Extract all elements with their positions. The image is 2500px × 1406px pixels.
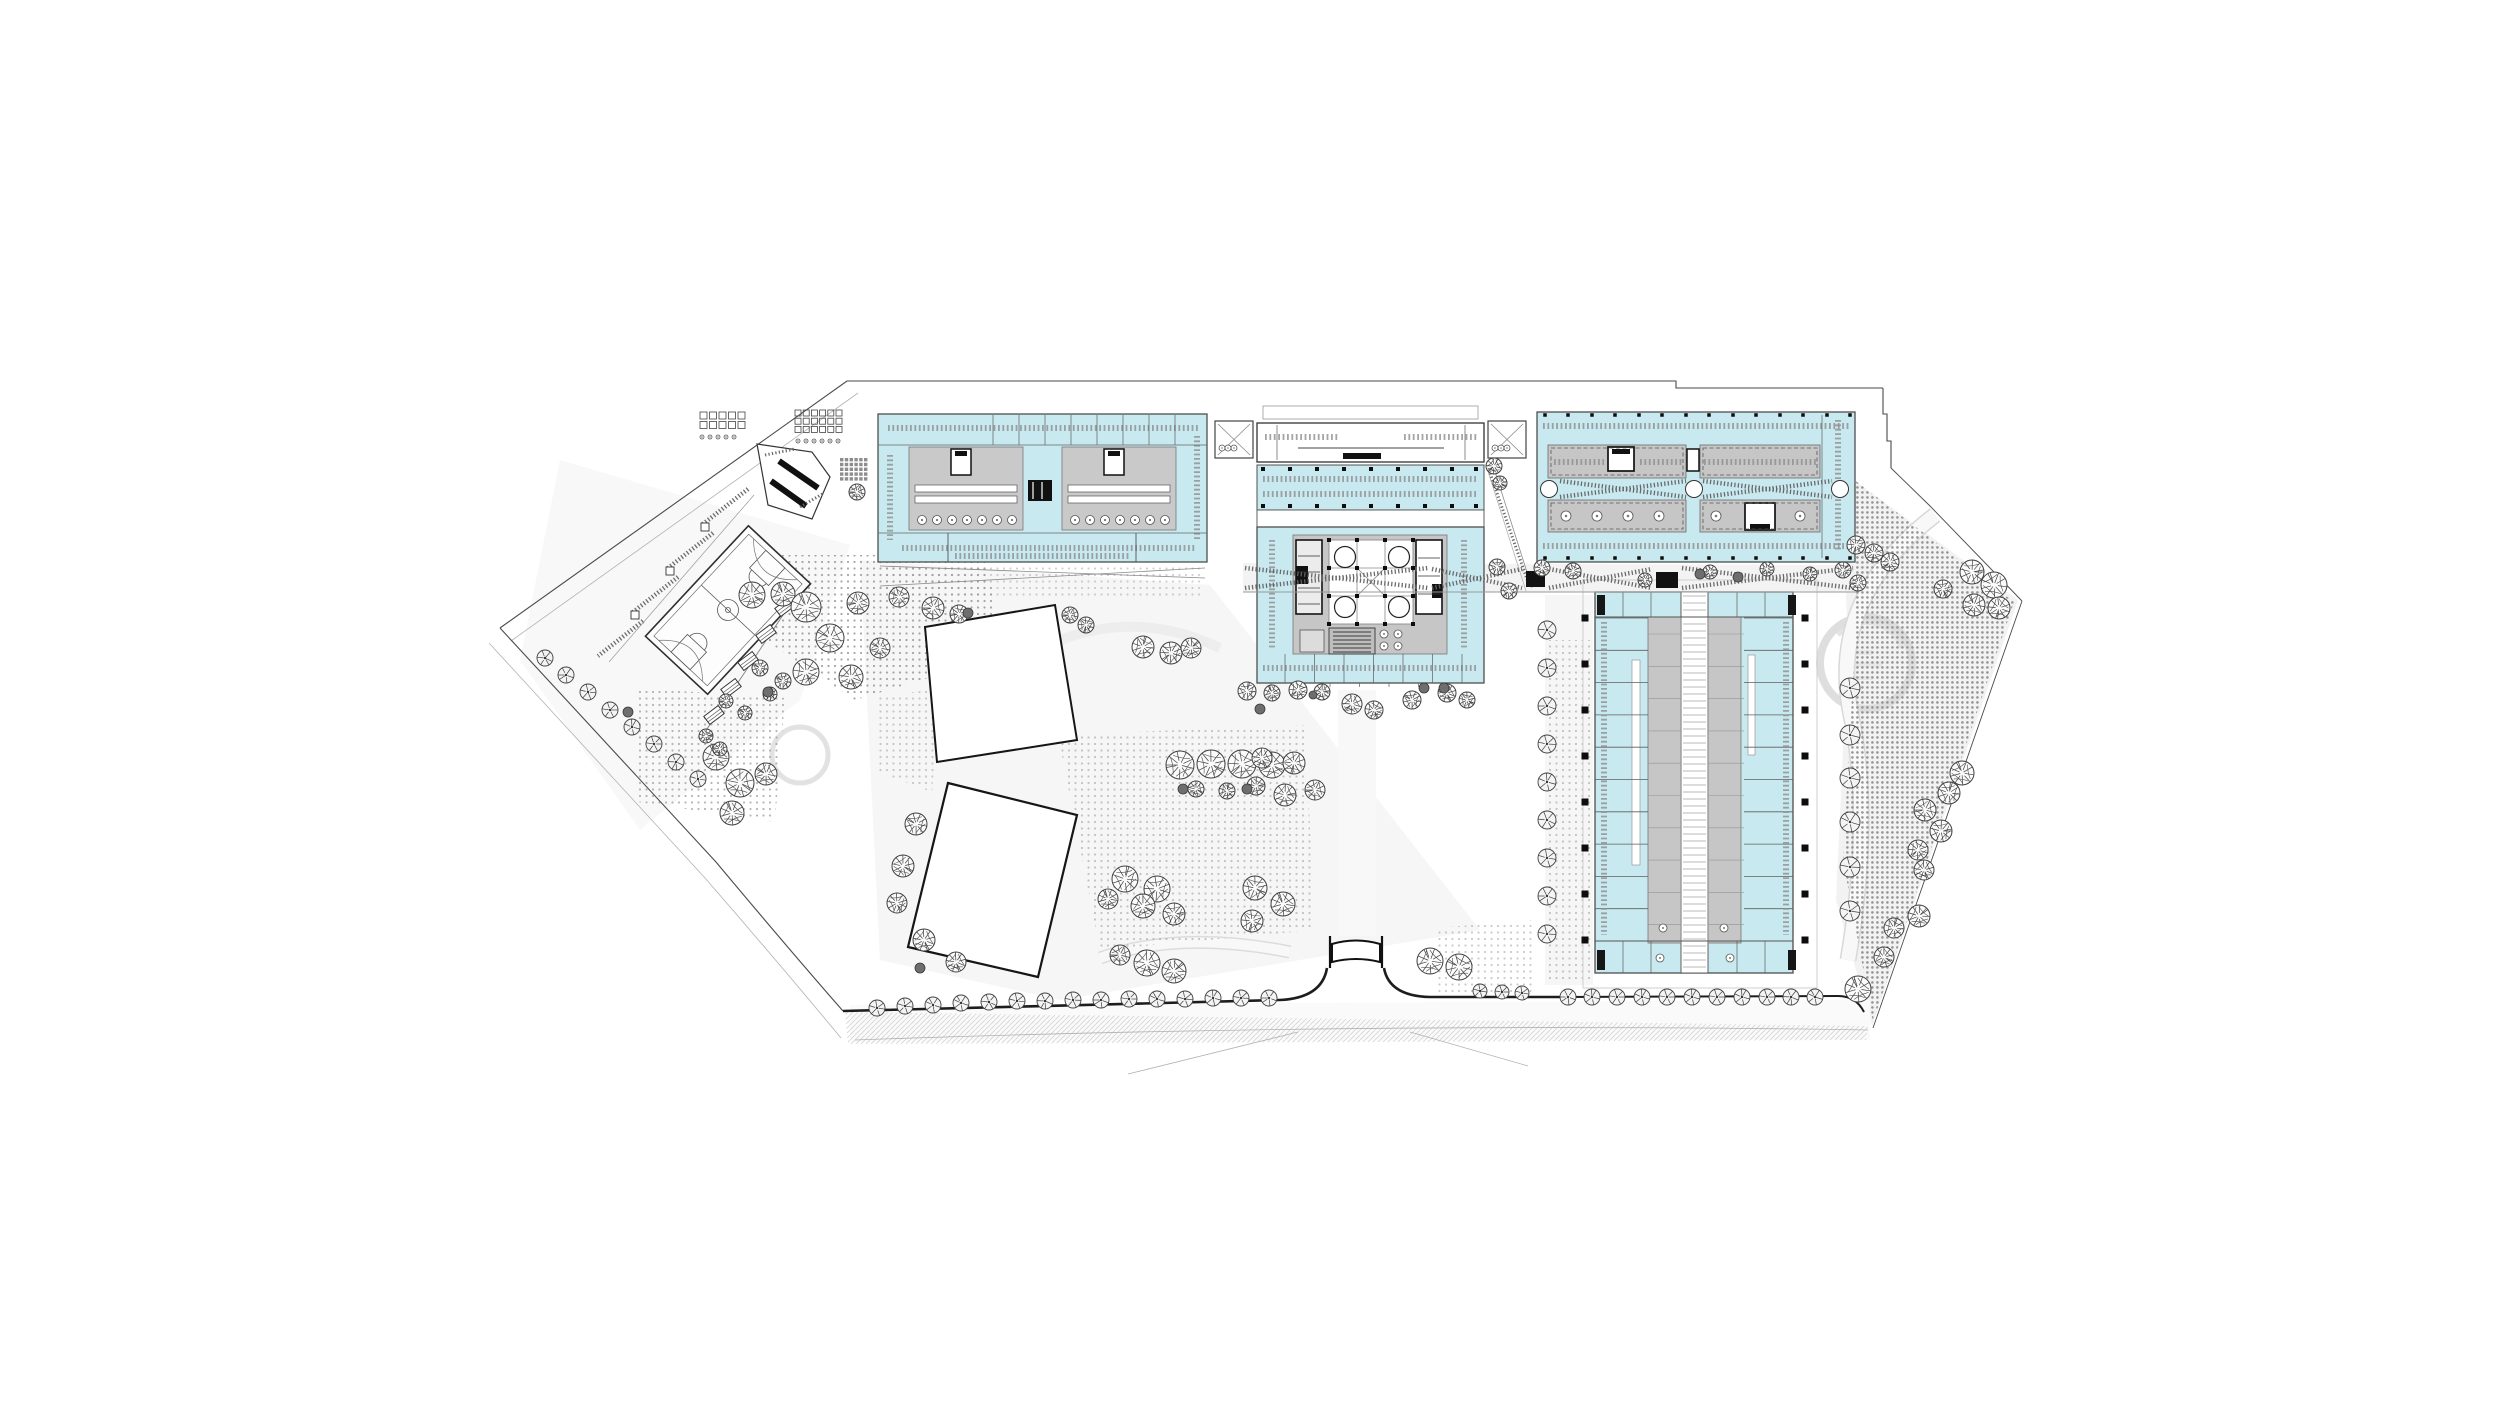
- street-tree: [1584, 989, 1600, 1005]
- tree-trunk: [1790, 996, 1792, 998]
- building-detail: [1500, 447, 1502, 449]
- tree: [946, 952, 966, 972]
- tree-canopy: [887, 893, 907, 913]
- column-dot: [1355, 594, 1359, 598]
- tree-trunk: [1521, 992, 1523, 994]
- building-detail: [1149, 519, 1151, 521]
- street-tree: [646, 736, 662, 752]
- tree-trunk: [1546, 895, 1548, 897]
- tree-trunk: [1072, 999, 1074, 1001]
- street-tree: [1840, 812, 1860, 832]
- building: [1788, 595, 1796, 615]
- street-tree: [1177, 991, 1193, 1007]
- service-kiosk: [1656, 572, 1678, 588]
- central-stair-spine: [1681, 592, 1708, 973]
- tree: [1845, 976, 1871, 1002]
- column-dot: [1411, 622, 1415, 626]
- tree-trunk: [1741, 996, 1743, 998]
- tree-canopy: [839, 665, 863, 689]
- street-tree: [1538, 925, 1556, 943]
- column-dot: [1327, 622, 1331, 626]
- tree-trunk: [544, 657, 546, 659]
- column: [1613, 413, 1617, 417]
- tree: [1565, 563, 1581, 579]
- street-tree: [1205, 990, 1221, 1006]
- tree-trunk: [988, 1001, 990, 1003]
- tree-trunk: [1814, 996, 1816, 998]
- tree-trunk: [1044, 1000, 1046, 1002]
- tree: [699, 729, 713, 743]
- street-tree: [1609, 989, 1625, 1005]
- tree: [1166, 751, 1194, 779]
- street-tree: [602, 702, 618, 718]
- street-tree: [1538, 621, 1556, 639]
- shrub: [1695, 569, 1705, 579]
- column: [1778, 556, 1782, 560]
- skylight-drum: [1389, 597, 1410, 618]
- tree: [1417, 948, 1443, 974]
- sports-feature: [829, 440, 831, 442]
- tree: [816, 624, 844, 652]
- street-tree: [869, 1000, 885, 1016]
- tree: [1342, 694, 1362, 714]
- street-tree: [580, 684, 596, 700]
- skylight-drum: [1335, 597, 1356, 618]
- building-detail: [1397, 645, 1399, 647]
- planting-grid: [854, 458, 857, 461]
- tree: [738, 706, 752, 720]
- tree: [1908, 840, 1928, 860]
- tree: [1446, 954, 1472, 980]
- column: [1848, 556, 1852, 560]
- building-detail: [1397, 633, 1399, 635]
- tree-trunk: [960, 1002, 962, 1004]
- column: [1315, 467, 1319, 471]
- building-detail: [951, 519, 953, 521]
- building-detail: [981, 519, 983, 521]
- street-tree: [558, 667, 574, 683]
- sports-feature: [701, 436, 703, 438]
- tree: [1803, 567, 1817, 581]
- shrub: [623, 707, 633, 717]
- tree: [1884, 918, 1904, 938]
- building: [1108, 451, 1120, 456]
- column: [1566, 413, 1570, 417]
- tree-canopy: [1365, 701, 1383, 719]
- shrub: [963, 608, 973, 618]
- tree-trunk: [1128, 998, 1130, 1000]
- sports-feature: [805, 440, 807, 442]
- building-detail: [1119, 519, 1121, 521]
- slab-core: [1648, 617, 1681, 943]
- building: [1788, 950, 1796, 970]
- tree-trunk: [1591, 996, 1593, 998]
- tree: [791, 592, 821, 622]
- column: [1582, 707, 1589, 714]
- tree-branch: [1493, 468, 1494, 474]
- tree: [849, 484, 865, 500]
- building: [1750, 524, 1770, 529]
- tree-trunk: [1766, 996, 1768, 998]
- long-table: [1068, 485, 1170, 492]
- street-tree: [1709, 989, 1725, 1005]
- shrub: [1242, 784, 1252, 794]
- street-tree: [1684, 989, 1700, 1005]
- servery-counter: [1343, 453, 1381, 459]
- tree-trunk: [653, 743, 655, 745]
- planting-grid: [864, 458, 867, 461]
- tree-trunk: [1849, 734, 1851, 736]
- building-detail: [1565, 515, 1568, 518]
- building-detail: [1659, 957, 1661, 959]
- tree: [1283, 752, 1305, 774]
- tree-trunk: [1616, 996, 1618, 998]
- planting-grid: [845, 458, 848, 461]
- shrub: [763, 687, 773, 697]
- street-tree: [1261, 990, 1277, 1006]
- building-detail: [936, 519, 938, 521]
- tree: [892, 855, 914, 877]
- column: [1590, 413, 1594, 417]
- street-tree: [897, 998, 913, 1014]
- column: [1450, 504, 1454, 508]
- street-tree: [1121, 991, 1137, 1007]
- column: [1848, 413, 1852, 417]
- tree: [1930, 820, 1952, 842]
- tree: [1534, 560, 1550, 576]
- tree: [1274, 784, 1296, 806]
- column: [1582, 615, 1589, 622]
- slab-core: [1708, 617, 1741, 943]
- column-dot: [1383, 622, 1387, 626]
- planting-grid: [850, 463, 853, 466]
- street-tree: [1734, 989, 1750, 1005]
- tree-trunk: [1546, 743, 1548, 745]
- tree: [1132, 636, 1154, 658]
- planting-grid: [845, 463, 848, 466]
- building: [1300, 630, 1324, 652]
- tree-canopy: [1934, 580, 1952, 598]
- sports-feature: [813, 440, 815, 442]
- tree-trunk: [697, 778, 699, 780]
- planting-grid: [854, 472, 857, 475]
- entrance-gate: [1332, 941, 1380, 963]
- tree: [847, 592, 869, 614]
- tree: [1160, 642, 1182, 664]
- tree: [839, 665, 863, 689]
- column: [1802, 937, 1809, 944]
- tree: [1938, 782, 1960, 804]
- street-tree: [1495, 985, 1509, 999]
- tree: [1062, 607, 1078, 623]
- planting-grid: [854, 477, 857, 480]
- column: [1802, 891, 1809, 898]
- tree: [1243, 876, 1267, 900]
- column: [1582, 845, 1589, 852]
- tree: [1865, 544, 1883, 562]
- tree: [755, 763, 777, 785]
- tree-trunk: [1212, 997, 1214, 999]
- tree-canopy: [1098, 889, 1118, 909]
- street-tree: [1807, 989, 1823, 1005]
- corridor: [1257, 510, 1484, 527]
- column-dot: [1383, 538, 1387, 542]
- street-tree: [1634, 989, 1650, 1005]
- tree: [1271, 892, 1295, 916]
- tree: [1988, 597, 2010, 619]
- tree-trunk: [1546, 819, 1548, 821]
- building-detail: [1221, 447, 1223, 449]
- tree: [1264, 685, 1280, 701]
- column-dot: [1327, 594, 1331, 598]
- tree-branch: [631, 719, 632, 726]
- tree: [775, 673, 791, 689]
- column-dot: [1411, 594, 1415, 598]
- tree: [887, 893, 907, 913]
- building-detail: [1541, 481, 1558, 498]
- tree-canopy: [1845, 976, 1871, 1002]
- tree-trunk: [1849, 821, 1851, 823]
- building: [955, 451, 967, 456]
- upper-plaza: [925, 605, 1077, 762]
- tree: [1934, 580, 1952, 598]
- planting-grid: [859, 472, 862, 475]
- column: [1543, 413, 1547, 417]
- tree-branch: [1508, 593, 1509, 599]
- column: [1684, 556, 1688, 560]
- column: [1261, 504, 1265, 508]
- stipple-patch: [1436, 920, 1532, 992]
- shrub: [1309, 691, 1317, 699]
- column: [1474, 504, 1478, 508]
- tree: [1403, 691, 1421, 709]
- column-dot: [1355, 622, 1359, 626]
- shrub: [915, 963, 925, 973]
- tree-trunk: [1479, 990, 1481, 992]
- column: [1582, 661, 1589, 668]
- tree-trunk: [1641, 996, 1643, 998]
- planting-grid: [840, 468, 843, 471]
- tree: [1112, 866, 1138, 892]
- tree: [905, 813, 927, 835]
- planting-grid: [840, 458, 843, 461]
- column-dot: [1383, 594, 1387, 598]
- tree: [889, 587, 909, 607]
- street-tree: [1840, 768, 1860, 788]
- tree: [1950, 761, 1974, 785]
- street-tree: [1037, 993, 1053, 1009]
- north-wing: [1257, 465, 1484, 510]
- building-detail: [1383, 645, 1385, 647]
- planting-grid: [840, 463, 843, 466]
- tree-canopy: [1271, 892, 1295, 916]
- street-tree: [624, 719, 640, 735]
- tree: [1098, 889, 1118, 909]
- long-table: [1068, 496, 1170, 503]
- column: [1825, 556, 1829, 560]
- tree-canopy: [1134, 950, 1160, 976]
- building-detail: [966, 519, 968, 521]
- tree-trunk: [675, 761, 677, 763]
- column: [1778, 413, 1782, 417]
- tree-trunk: [587, 691, 589, 693]
- column: [1660, 556, 1664, 560]
- tree: [1874, 947, 1894, 967]
- tree: [1638, 573, 1652, 587]
- tree: [739, 582, 765, 608]
- street-tree: [1560, 989, 1576, 1005]
- column: [1590, 556, 1594, 560]
- long-table: [915, 496, 1017, 503]
- tree-trunk: [1546, 705, 1548, 707]
- tree: [1835, 562, 1851, 578]
- tree: [713, 742, 727, 756]
- street-tree: [1093, 992, 1109, 1008]
- planting-grid: [854, 468, 857, 471]
- building: [1612, 449, 1630, 454]
- tree-canopy: [793, 659, 819, 685]
- street-tree: [1840, 857, 1860, 877]
- planting-grid: [859, 477, 862, 480]
- column: [1582, 799, 1589, 806]
- tree-trunk: [1546, 667, 1548, 669]
- building-detail: [1662, 927, 1664, 929]
- tree: [1881, 553, 1899, 571]
- planting-grid: [845, 472, 848, 475]
- building-detail: [1686, 481, 1703, 498]
- shrub: [1178, 784, 1188, 794]
- column: [1543, 556, 1547, 560]
- sports-feature: [701, 523, 709, 531]
- column: [1582, 753, 1589, 760]
- tree-trunk: [1666, 996, 1668, 998]
- tree-trunk: [565, 674, 567, 676]
- street-tree: [953, 995, 969, 1011]
- tree-trunk: [1849, 777, 1851, 779]
- ground-feature: [1338, 690, 1376, 936]
- column: [1802, 615, 1809, 622]
- column: [1396, 504, 1400, 508]
- building: [1632, 660, 1640, 865]
- site-plan-canvas: [0, 0, 2500, 1406]
- sports-feature: [821, 440, 823, 442]
- tree-trunk: [1268, 997, 1270, 999]
- planting-grid: [850, 468, 853, 471]
- street-tree: [925, 997, 941, 1013]
- column: [1261, 467, 1265, 471]
- building-detail: [1627, 515, 1630, 518]
- building-detail: [1227, 447, 1229, 449]
- planting-grid: [859, 463, 862, 466]
- street-tree: [1783, 989, 1799, 1005]
- column: [1613, 556, 1617, 560]
- street-tree: [668, 754, 684, 770]
- building-detail: [1723, 927, 1725, 929]
- building: [1748, 655, 1755, 755]
- tree: [922, 597, 944, 619]
- tree: [1914, 799, 1936, 821]
- tree: [1489, 559, 1505, 575]
- tree: [1960, 560, 1984, 584]
- tree: [1134, 950, 1160, 976]
- tree: [1847, 536, 1865, 554]
- column: [1369, 467, 1373, 471]
- planting-grid: [859, 458, 862, 461]
- shrub: [1733, 572, 1743, 582]
- street-tree: [1759, 989, 1775, 1005]
- tree: [1197, 750, 1225, 778]
- site-plan-page: [0, 0, 2500, 1406]
- street-tree: [1659, 989, 1675, 1005]
- tree: [1305, 780, 1325, 800]
- column: [1802, 753, 1809, 760]
- building-detail: [1011, 519, 1013, 521]
- building-detail: [1104, 519, 1106, 521]
- column: [1637, 413, 1641, 417]
- column: [1369, 504, 1373, 508]
- column: [1423, 504, 1427, 508]
- tree-canopy: [913, 929, 935, 951]
- tree-branch: [1741, 989, 1742, 996]
- service-rooms: [1416, 540, 1442, 614]
- tree-canopy: [791, 592, 821, 622]
- sports-feature: [725, 436, 727, 438]
- tree: [1162, 959, 1186, 983]
- column: [1707, 556, 1711, 560]
- street-tree: [1538, 887, 1556, 905]
- building-detail: [1832, 481, 1849, 498]
- street-tree: [1840, 725, 1860, 745]
- building: [1597, 595, 1605, 615]
- skylight-drum: [1335, 547, 1356, 568]
- building-detail: [1494, 447, 1496, 449]
- column: [1802, 845, 1809, 852]
- column: [1450, 467, 1454, 471]
- building-detail: [996, 519, 998, 521]
- building: [1432, 584, 1442, 598]
- street-tree: [1009, 993, 1025, 1009]
- tree-trunk: [1156, 998, 1158, 1000]
- column: [1754, 556, 1758, 560]
- tree: [1459, 692, 1475, 708]
- building-detail: [1715, 515, 1718, 518]
- planting-grid: [845, 477, 848, 480]
- column: [1423, 467, 1427, 471]
- column: [1315, 504, 1319, 508]
- tree: [752, 660, 768, 676]
- column: [1566, 556, 1570, 560]
- elevator-core: [1687, 449, 1699, 471]
- elevator-core: [1028, 480, 1052, 501]
- column: [1474, 467, 1478, 471]
- street-tree: [1538, 697, 1556, 715]
- tree: [1289, 681, 1307, 699]
- street-tree: [1840, 901, 1860, 921]
- street-tree: [1233, 990, 1249, 1006]
- sports-feature: [797, 440, 799, 442]
- tree-trunk: [932, 1004, 934, 1006]
- tree-trunk: [1546, 629, 1548, 631]
- planting-grid: [864, 477, 867, 480]
- column: [1582, 891, 1589, 898]
- building-detail: [1089, 519, 1091, 521]
- column-dot: [1411, 538, 1415, 542]
- tree-canopy: [720, 801, 744, 825]
- column-dot: [1355, 538, 1359, 542]
- column: [1801, 556, 1805, 560]
- tree-trunk: [1240, 997, 1242, 999]
- column: [1754, 413, 1758, 417]
